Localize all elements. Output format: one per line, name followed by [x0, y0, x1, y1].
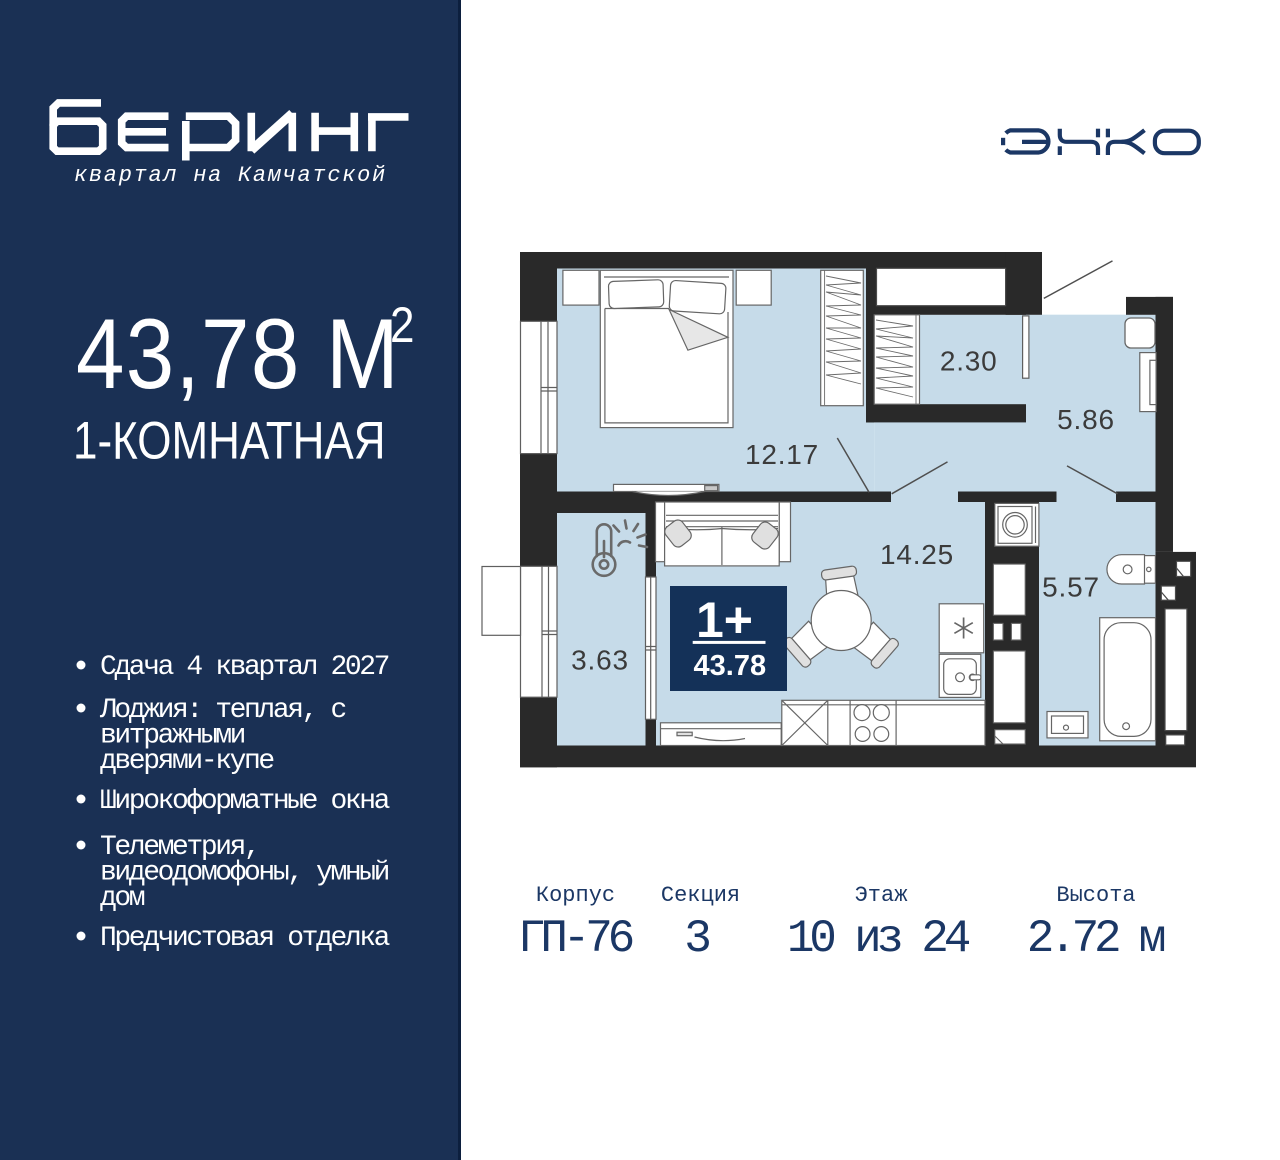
svg-text:дом: дом: [100, 883, 145, 914]
svg-text:43,78 М: 43,78 М: [76, 299, 400, 409]
svg-text:Широкоформатные окна: Широкоформатные окна: [100, 786, 390, 817]
svg-text:2.72 м: 2.72 м: [1027, 913, 1165, 965]
svg-text:1-КОМНАТНАЯ: 1-КОМНАТНАЯ: [73, 412, 385, 471]
svg-text:Сдача 4 квартал 2027: Сдача 4 квартал 2027: [100, 652, 389, 683]
svg-text:12.17: 12.17: [745, 439, 819, 470]
svg-text:1+: 1+: [696, 592, 753, 648]
svg-text:5.57: 5.57: [1042, 572, 1100, 603]
svg-text:Высота: Высота: [1056, 883, 1135, 908]
svg-text:3.63: 3.63: [571, 645, 629, 676]
svg-text:Этаж: Этаж: [855, 883, 909, 908]
svg-text:10 из 24: 10 из 24: [787, 913, 970, 965]
svg-text:дверями-купе: дверями-купе: [100, 746, 273, 777]
svg-text:5.86: 5.86: [1057, 404, 1115, 435]
svg-text:Корпус: Корпус: [536, 883, 615, 908]
svg-text:Предчистовая отделка: Предчистовая отделка: [100, 923, 390, 954]
svg-text:2.30: 2.30: [940, 346, 998, 377]
svg-text:Секция: Секция: [661, 883, 740, 908]
svg-text:квартал на Камчатской: квартал на Камчатской: [74, 163, 387, 188]
svg-text:14.25: 14.25: [880, 539, 954, 570]
svg-text:3: 3: [684, 913, 709, 965]
svg-text:видеодомофоны, умный: видеодомофоны, умный: [100, 858, 389, 889]
svg-text:ГП-76: ГП-76: [518, 913, 633, 965]
svg-text:2: 2: [390, 296, 414, 352]
svg-text:43.78: 43.78: [694, 650, 767, 682]
